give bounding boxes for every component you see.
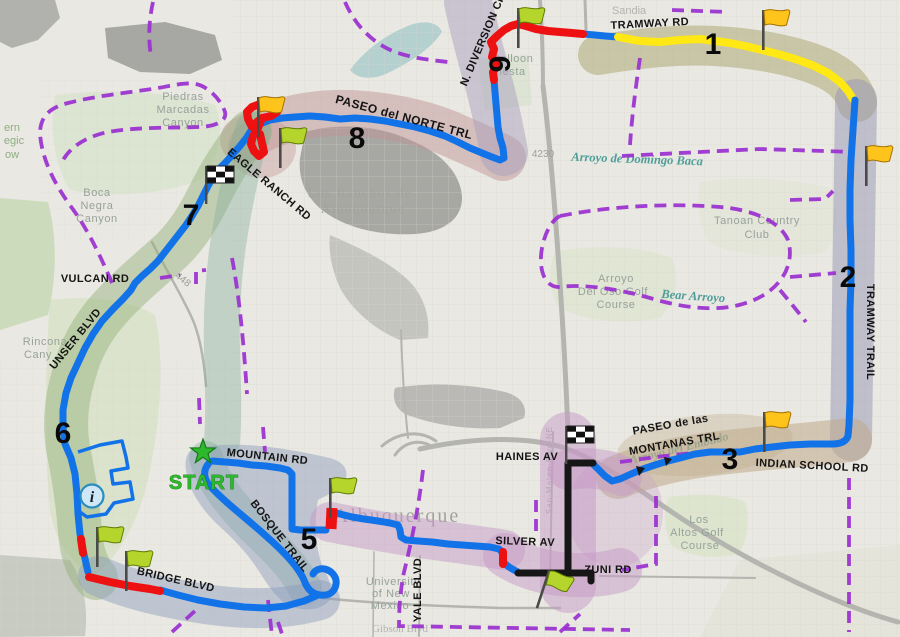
area-label-losaltos-2: Altos Golf — [670, 527, 724, 539]
segment-number-7: 7 — [183, 199, 200, 232]
info-icon: i — [81, 485, 104, 508]
area-label-boca-2: Negra — [81, 200, 114, 212]
area-label-edge-2: egic — [4, 135, 25, 147]
area-label-oso-1: Arroyo — [598, 273, 634, 285]
route-segment-top-connector — [583, 34, 618, 37]
area-label-losranchos-2: Albuquerque — [321, 201, 405, 216]
segment-number-5: 5 — [301, 523, 318, 556]
area-label-losaltos-3: Course — [680, 540, 719, 552]
route-red-segment-unser — [81, 539, 83, 553]
area-label-tanoan-2: Club — [744, 229, 769, 241]
area-label-edge-1: ern — [4, 122, 20, 134]
road-label-vulcan: VULCAN RD — [61, 273, 129, 285]
segment-number-8: 8 — [349, 122, 366, 155]
start-label: START — [169, 472, 239, 494]
area-label-piedras-2: Marcadas — [156, 104, 209, 116]
route-map: Sandia Piedras Marcadas Canyon Boca Negr… — [0, 0, 900, 637]
segment-number-9: 9 — [484, 56, 517, 73]
road-label-zuni: ZUNI RD — [584, 564, 631, 576]
road-label-tramway-trail: TRAMWAY TRAIL — [864, 284, 876, 380]
segment-number-1: 1 — [705, 28, 722, 61]
area-label-unm-3: Mexico — [371, 600, 409, 612]
area-label-unm-2: of New — [372, 588, 410, 600]
road-label-yale: YALE BLVD — [412, 558, 424, 622]
segment-number-2: 2 — [840, 261, 857, 294]
info-icon-glyph: i — [90, 489, 95, 506]
area-label-losranchos-1: Los Ranchos de — [308, 185, 412, 200]
segment-number-6: 6 — [55, 417, 72, 450]
area-label-boca-1: Boca — [83, 187, 111, 199]
area-label-piedras-1: Piedras — [162, 91, 204, 103]
road-shield-4230: 4230 — [532, 149, 555, 160]
segment-number-3: 3 — [722, 443, 739, 476]
area-label-sandia: Sandia — [612, 5, 647, 17]
road-label-haines: HAINES AV — [496, 451, 559, 463]
road-label-silver: SILVER AV — [495, 535, 555, 549]
route-map-canvas: Sandia Piedras Marcadas Canyon Boca Negr… — [0, 0, 900, 637]
area-label-edge-3: ow — [5, 149, 19, 161]
area-label-losaltos-1: Los — [689, 514, 709, 526]
area-label-oso-3: Course — [596, 299, 635, 311]
area-label-rinconada-2: Cany — [24, 349, 52, 361]
